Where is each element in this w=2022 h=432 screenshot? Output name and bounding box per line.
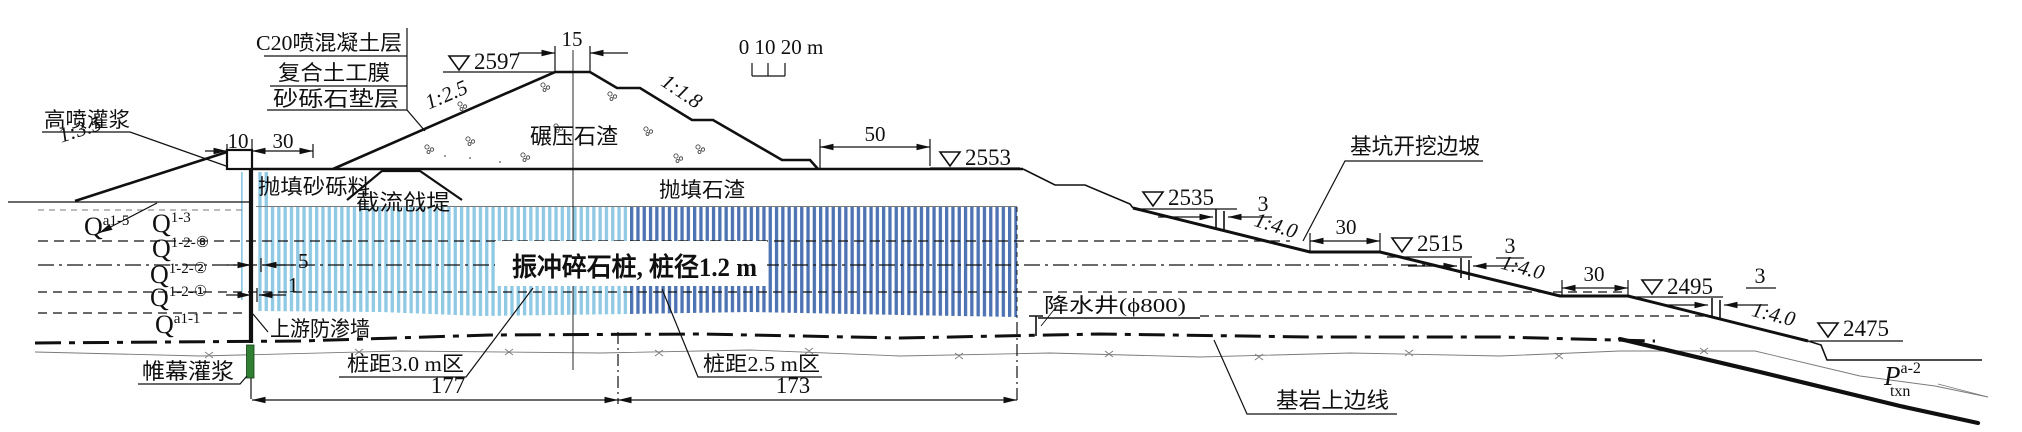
bedrock-line-label: 基岩上边线	[1276, 388, 1389, 413]
dumped-gravel-label: 抛填砂砾料	[258, 175, 370, 199]
elevation-pit-bottom: 2475	[1843, 316, 1889, 341]
dewatering-well-label: 降水井(ϕ800)	[1044, 294, 1186, 317]
strata-label-q1-2-1: Q1-2-①	[150, 283, 207, 312]
curtain-grouting-label: 帷幕灌浆	[142, 359, 234, 384]
dim-platform-width: 50	[865, 122, 886, 146]
dim-zone25-length: 173	[776, 373, 811, 398]
scale-bar-text: 0 10 20 m	[739, 35, 824, 59]
dim-bench-width-1: 30	[1336, 215, 1357, 239]
cutoff-wall-leader	[253, 314, 268, 332]
dim-upper-berm: 30	[273, 129, 294, 153]
dewatering-well: 降水井(ϕ800)	[1029, 294, 1200, 336]
dim-zone3-length: 177	[431, 373, 466, 398]
elevation-triangle-icon	[1392, 238, 1412, 252]
elevation-triangle-icon	[940, 152, 960, 166]
material-label-shotcrete: C20喷混凝土层	[256, 31, 402, 55]
dim-crest-width: 15	[562, 27, 583, 51]
formation-label-ptxn: Pa-2txn	[1883, 360, 1921, 400]
stone-columns-label: 振冲碎石桩, 桩径1.2 m	[512, 252, 757, 282]
pit-slope-label: 基坑开挖边坡	[1350, 134, 1480, 159]
cutoff-wall-label: 上游防渗墙	[270, 317, 370, 341]
elevation-triangle-icon	[1143, 192, 1163, 206]
dim-step-2: 3	[1505, 233, 1516, 258]
scale-bar: 0 10 20 m	[739, 35, 824, 76]
dim-step-1: 3	[1258, 191, 1269, 216]
strata-label-qa1-1: Qa1-1	[155, 310, 200, 339]
slope-gate-symbol-2	[1461, 258, 1469, 280]
slope-ratio-pit-3: 1:4.0	[1750, 297, 1799, 331]
dim-bench-width-2: 30	[1584, 262, 1605, 286]
engineering-cross-section-page: C20喷混凝土层 复合土工膜 砂砾石垫层 高喷灌浆 1:3.5 抛填砂砾料 截流…	[0, 0, 2022, 432]
elevation-bench2: 2515	[1417, 231, 1463, 256]
cofferdam-foundation-cross-section: C20喷混凝土层 复合土工膜 砂砾石垫层 高喷灌浆 1:3.5 抛填砂砾料 截流…	[0, 0, 2022, 432]
strata-labels: Qa1-5 Q1-3 Q1-2-⑧ Q1-2-② Q1-2-① Qa1-1	[84, 203, 209, 339]
dumped-rockfill-label: 抛填石渣	[659, 178, 745, 202]
elevation-triangle-icon	[449, 56, 469, 70]
material-label-geomembrane: 复合土工膜	[278, 61, 390, 85]
pit-slope-leader	[1303, 161, 1483, 241]
stone-column-left-of-wall	[241, 172, 245, 300]
strata-label-qa1-5: Qa1-5	[84, 212, 129, 241]
elevation-triangle-icon	[1642, 280, 1662, 294]
formation-label-leader	[1938, 384, 1988, 397]
elevation-bench3: 2495	[1667, 274, 1713, 299]
dim-wall-offset-5: 5	[298, 249, 309, 273]
rolled-rockfill-label: 碾压石渣	[530, 124, 618, 149]
curtain-grouting-bar	[247, 345, 255, 378]
material-label-gravel-cushion: 砂砾石垫层	[273, 87, 399, 111]
elevation-triangle-icon	[1818, 323, 1838, 337]
dim-row-offset-1: 1	[288, 273, 299, 297]
cofferdam-upstream-slope	[75, 152, 227, 201]
elevation-crest: 2597	[474, 49, 520, 74]
elevation-platform: 2553	[965, 145, 1011, 170]
slope-ratio-downstream: 1:1.8	[657, 69, 707, 114]
fault-line	[1620, 339, 1978, 423]
elevation-bench1: 2535	[1168, 185, 1214, 210]
materials-callout: C20喷混凝土层 复合土工膜 砂砾石垫层	[256, 28, 425, 131]
strata-label-q1-2-8: Q1-2-⑧	[152, 234, 209, 263]
slope-ratio-upstream: 1:2.5	[421, 75, 471, 114]
dewatering-well-symbol	[1029, 316, 1043, 336]
scale-bar-ticks	[752, 63, 785, 76]
closure-dike-label: 截流戗堤	[356, 190, 450, 215]
dam-labels: 1:2.5 1:1.8 碾压石渣 抛填石渣	[421, 69, 745, 202]
right-platform-slope	[1023, 169, 1133, 208]
dim-cap-width: 10	[228, 129, 249, 153]
dim-step-3: 3	[1755, 263, 1766, 288]
pit-bottom-line	[1808, 341, 1982, 360]
